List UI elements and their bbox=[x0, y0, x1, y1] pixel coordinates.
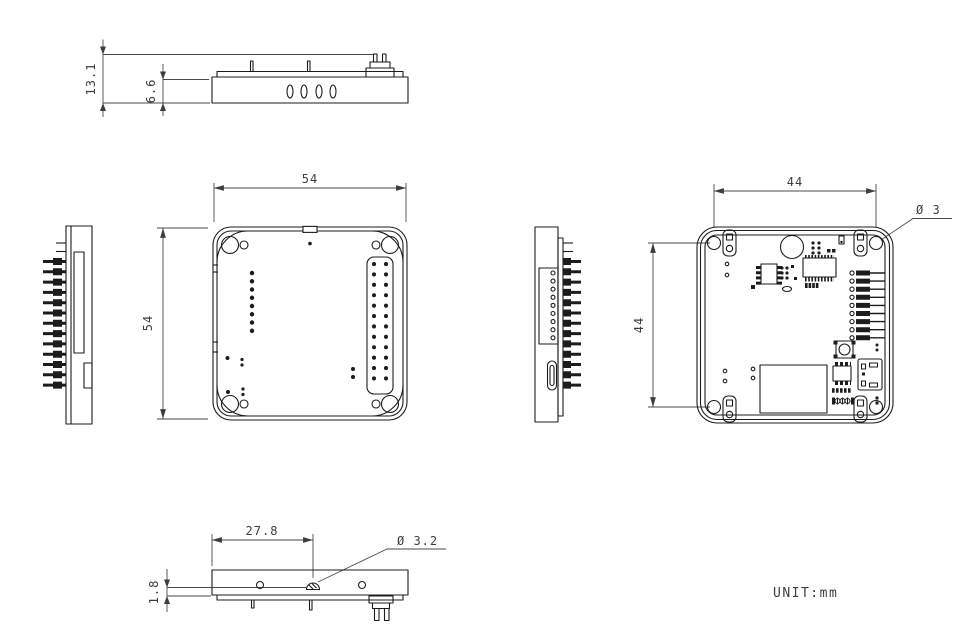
callout-base-hole-label: Ø 3.2 bbox=[397, 534, 438, 548]
dim-top-width-label: 54 bbox=[302, 172, 318, 186]
dim-hole-pitch-v-label: 44 bbox=[632, 317, 646, 333]
top-edge-notch bbox=[303, 226, 317, 232]
terminal-row bbox=[850, 271, 878, 341]
dim-body-height-label: 6.6 bbox=[144, 79, 158, 104]
dim-total-height-label: 13.1 bbox=[84, 63, 98, 96]
drawing-sheet: 13.1 6.6 bbox=[0, 0, 973, 635]
unit-note: UNIT:mm bbox=[773, 586, 838, 601]
dim-base-plate-height-label: 1.8 bbox=[147, 580, 161, 605]
dim-hole-pitch-h-label: 44 bbox=[787, 175, 803, 189]
dim-base-hole-offset-label: 27.8 bbox=[246, 524, 279, 538]
technical-drawing: 13.1 6.6 bbox=[0, 0, 973, 635]
dim-top-depth-label: 54 bbox=[141, 315, 155, 331]
callout-corner-hole-label: Ø 3 bbox=[916, 203, 941, 217]
